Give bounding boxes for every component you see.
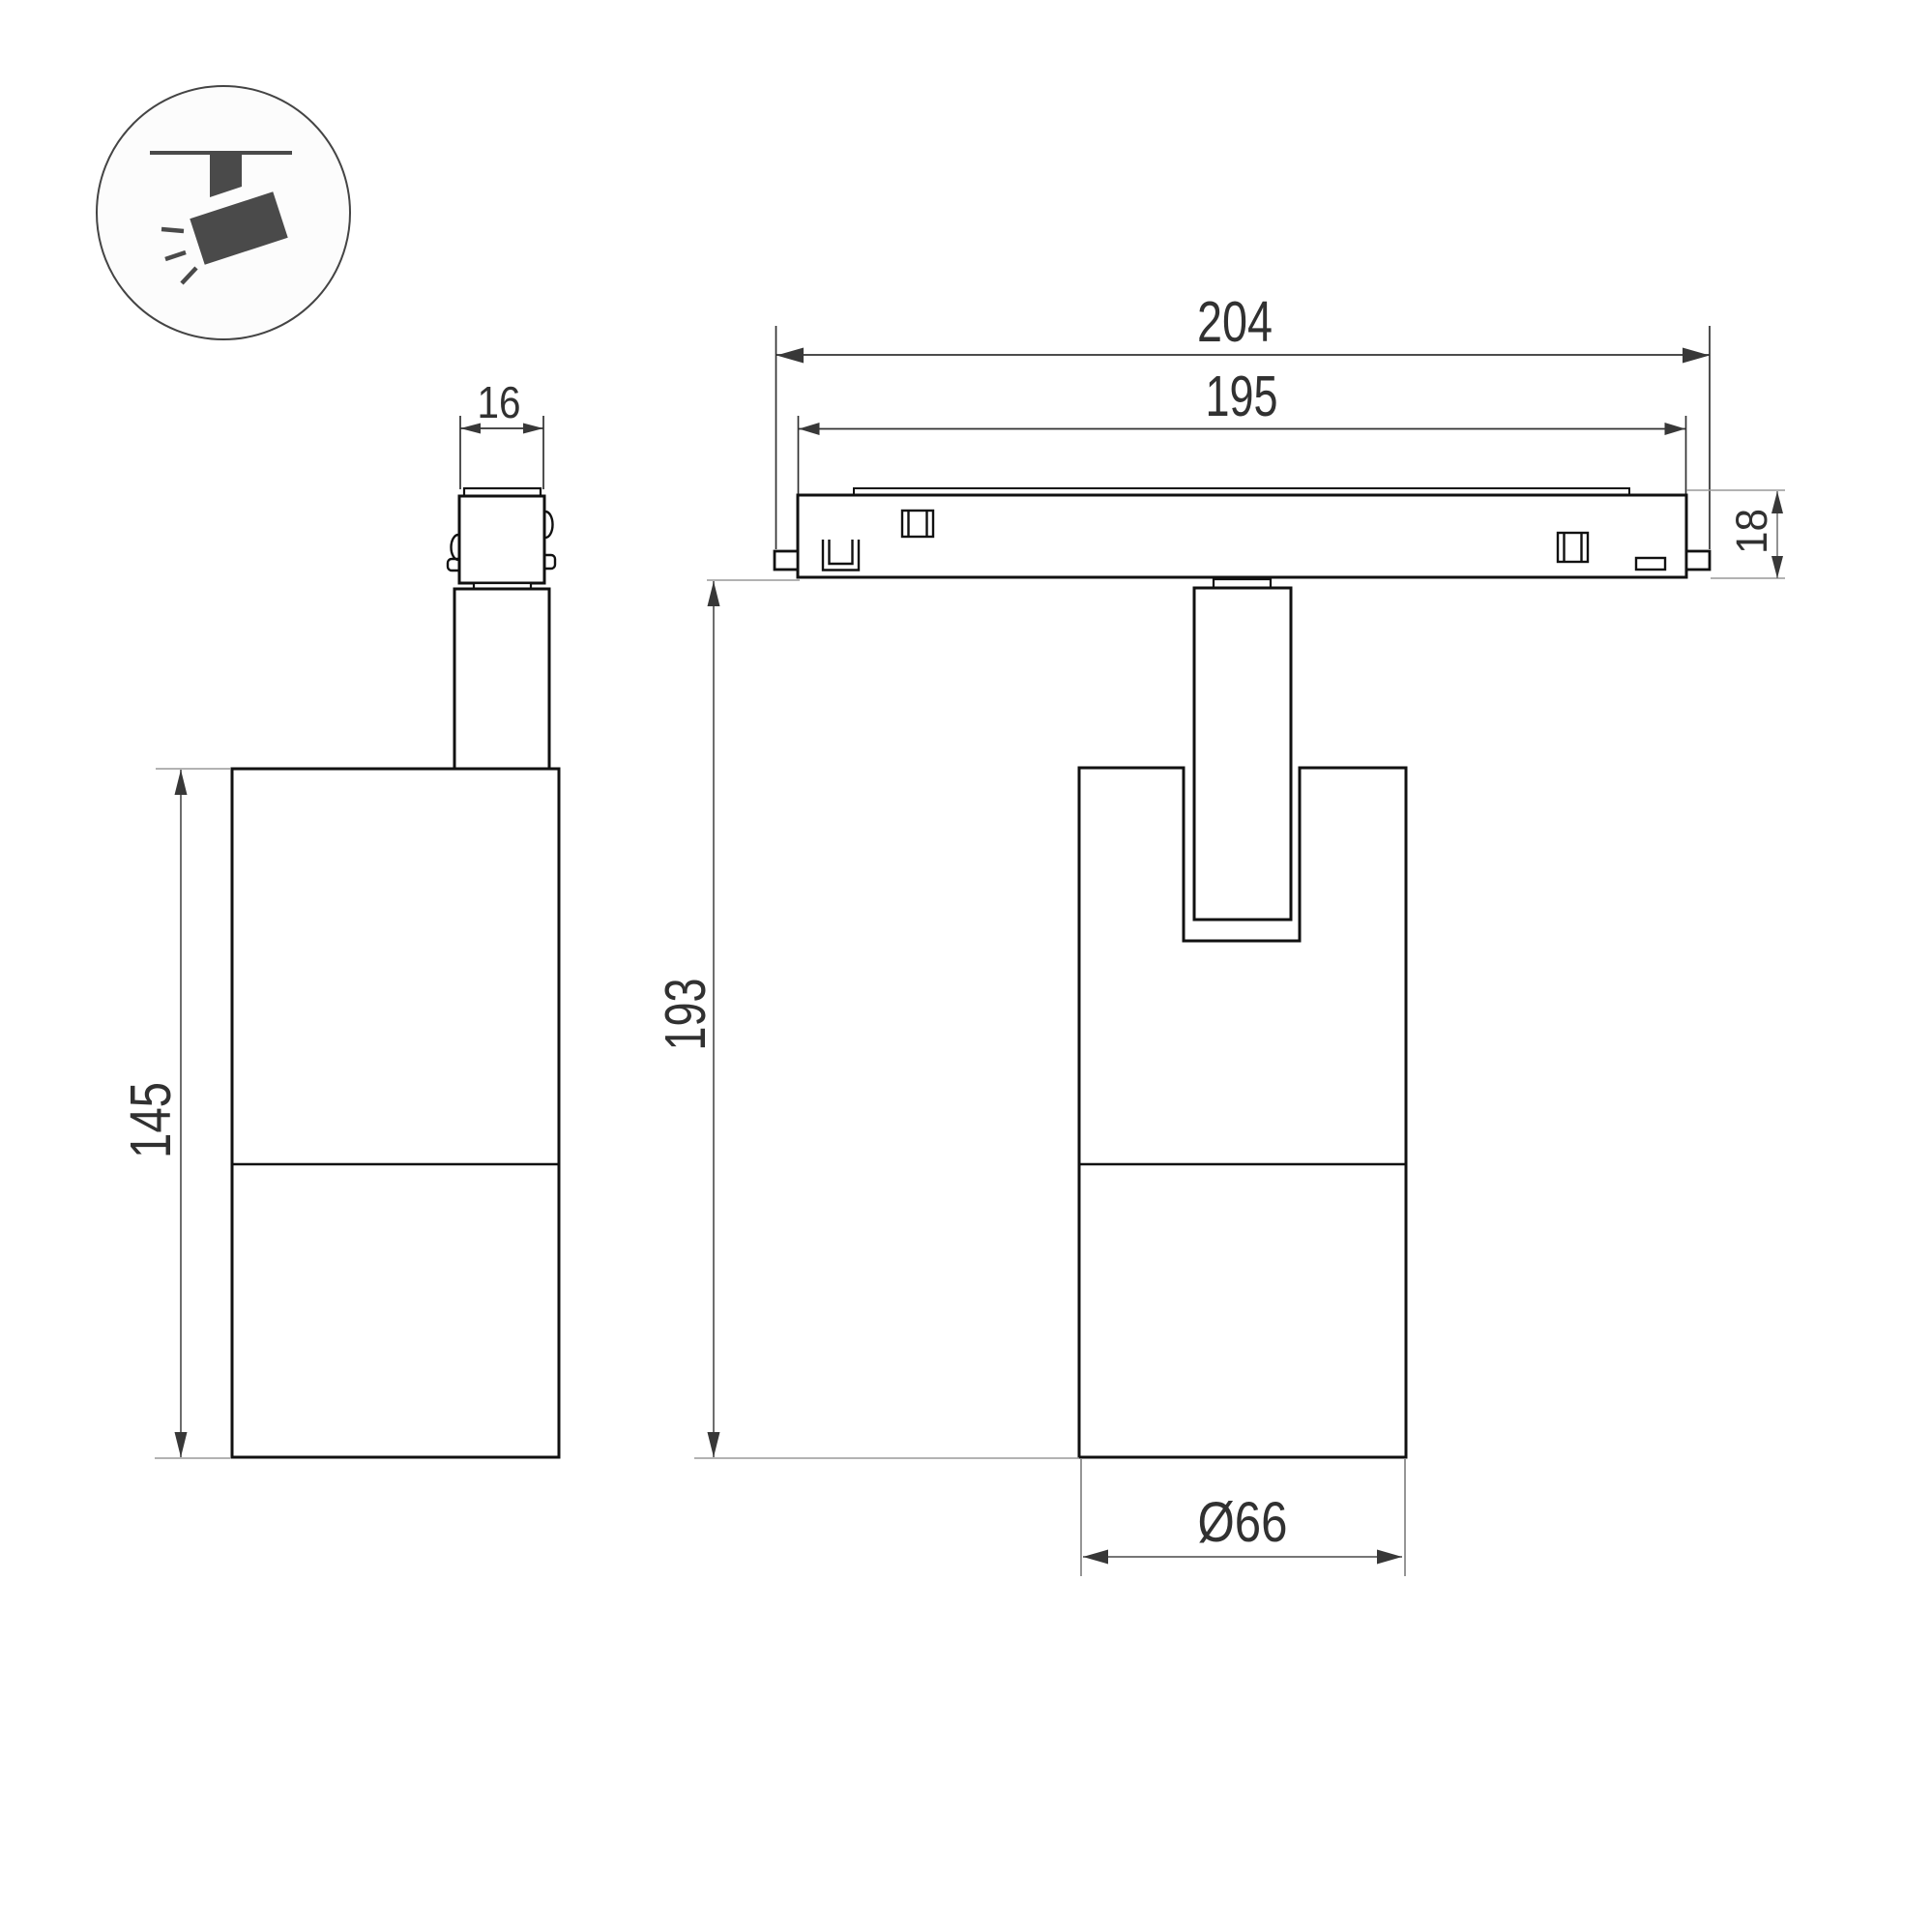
svg-text:195: 195 bbox=[1206, 365, 1278, 428]
svg-text:193: 193 bbox=[654, 979, 717, 1051]
svg-text:204: 204 bbox=[1197, 290, 1273, 354]
svg-text:145: 145 bbox=[119, 1082, 183, 1158]
svg-text:18: 18 bbox=[1727, 509, 1776, 554]
svg-text:Ø66: Ø66 bbox=[1198, 1491, 1288, 1554]
svg-text:16: 16 bbox=[478, 377, 521, 427]
